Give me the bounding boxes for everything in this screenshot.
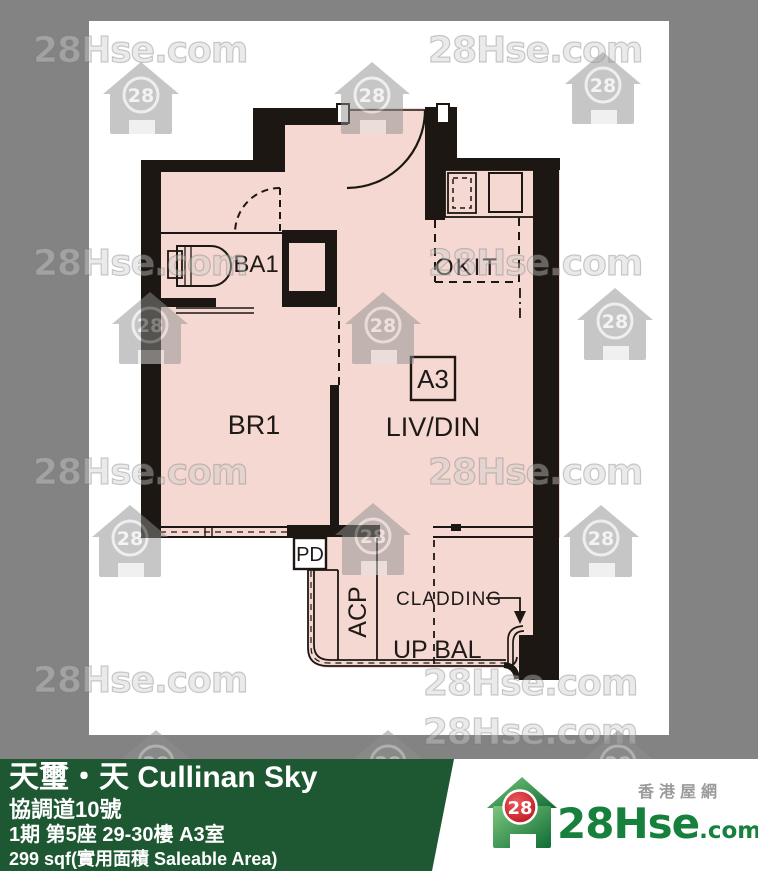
estate-name: 天璽・天 Cullinan Sky (9, 760, 317, 796)
saleable-area: 299 sqf(實用面積 Saleable Area) (9, 848, 317, 871)
label-acp: ACP (344, 586, 372, 637)
brand-panel: 香港屋網 28 28Hse.com (432, 759, 758, 871)
label-bathroom: BA1 (233, 251, 278, 278)
estate-address: 協調道10號 (9, 796, 317, 823)
label-open-kitchen: OKIT (435, 254, 499, 281)
floorplan-listing-image: BA1 OKIT A3 BR1 LIV/DIN PD ACP CLADDING … (0, 0, 758, 871)
label-unit: A3 (417, 364, 449, 394)
unit-info: 1期 第5座 29-30樓 A3室 (9, 823, 317, 848)
info-bar: 天璽・天 Cullinan Sky 協調道10號 1期 第5座 29-30樓 A… (0, 759, 758, 871)
label-pipe-duct: PD (296, 544, 324, 566)
label-living-dining: LIV/DIN (386, 412, 481, 442)
floorplan-drawing: BA1 OKIT A3 BR1 LIV/DIN PD ACP CLADDING … (0, 0, 758, 871)
property-info: 天璽・天 Cullinan Sky 協調道10號 1期 第5座 29-30樓 A… (9, 760, 317, 871)
label-bedroom: BR1 (228, 410, 281, 440)
label-cladding: CLADDING (396, 589, 502, 610)
brand-domain: .com (699, 818, 758, 844)
logo-28hse-house-icon: 28 (487, 777, 557, 849)
logo-28-number: 28 (507, 798, 532, 819)
label-balcony: UP BAL (393, 636, 482, 664)
brand-name: 28Hse (557, 799, 699, 848)
brand-wordmark: 28Hse.com (557, 803, 758, 845)
